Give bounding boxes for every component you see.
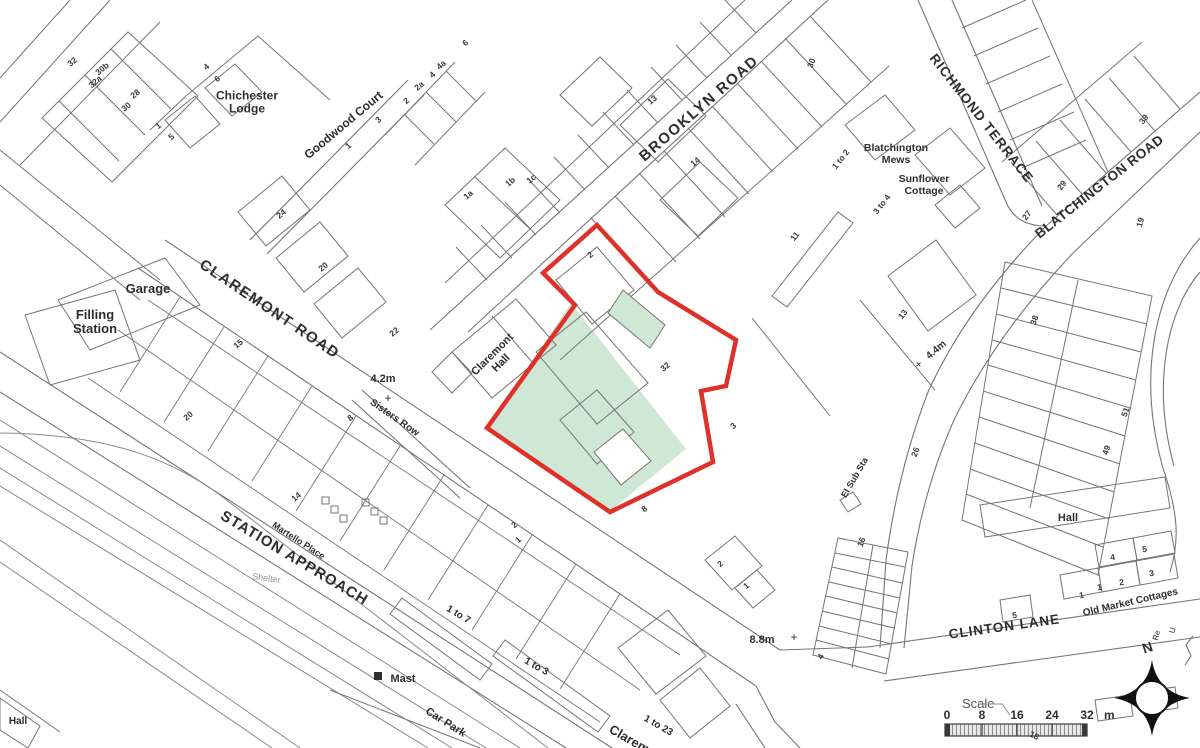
map-label-num-1-s: 1 [741, 580, 751, 591]
map-label-num-19: 19 [1134, 216, 1146, 228]
map-label-num-4-cl: 4 [1110, 552, 1116, 563]
map-label-blatchington-mews: BlatchingtonMews [864, 142, 928, 166]
map-label-num-3-cl: 3 [1149, 568, 1155, 579]
map-label-num-1b: 1b [503, 175, 517, 189]
map-label-range-1-to-23: 1 to 23 [642, 713, 675, 739]
scale-tick-8: 8 [979, 708, 986, 722]
map-label-num-1to2: 1 to 2 [830, 147, 852, 171]
map-label-partial-u: U [1167, 626, 1177, 634]
map-label-num-5-a: 5 [166, 131, 176, 142]
map-label-num-32: 32 [65, 55, 79, 69]
map-label-num-1a: 1a [461, 188, 475, 202]
map-label-num-2-s: 2 [715, 558, 725, 569]
scale-bar: Scale 08162432 m [944, 696, 1115, 736]
map-label-station-approach: STATION APPROACH [217, 507, 371, 609]
map-label-num-1-cl-a: 1 [1079, 590, 1085, 601]
map-label-num-20-w: 20 [181, 409, 195, 423]
map-label-chichester-lodge: ChichesterLodge [216, 88, 278, 115]
map-label-filling-station: FillingStation [73, 307, 117, 336]
map-label-num-20-cr: 20 [316, 260, 330, 274]
map-label-num-4-s: 4 [815, 652, 826, 661]
map-label-num-26: 26 [909, 446, 922, 459]
map-label-num-2-cl: 2 [1119, 577, 1125, 588]
scale-tick-16: 16 [1010, 708, 1024, 722]
map-label-num-2-gc: 2 [401, 95, 411, 106]
map-label-num-38: 38 [1028, 314, 1041, 327]
map-label-num-14-br: 14 [688, 155, 702, 169]
map-canvas: Scale 08162432 m N BROOKLYN ROADCLAREMON… [0, 0, 1200, 748]
map-label-num-28: 28 [128, 87, 142, 101]
map-label-range-1-to-3: 1 to 3 [522, 656, 551, 678]
map-label-num-5-cl2: 5 [1012, 610, 1018, 621]
map-label-plus-8-8: + [790, 630, 797, 644]
compass-north-label: N [1140, 638, 1155, 656]
map-label-num-1-cl-b: 1 [1097, 582, 1103, 593]
map-label-num-13-e: 13 [896, 307, 910, 321]
map-label-num-4a-gc: 4a [434, 58, 448, 72]
map-label-sunflower-cottage: SunflowerCottage [899, 173, 950, 197]
map-label-sisters-row: Sisters Row [368, 397, 421, 439]
map-label-partial-re: Re [1151, 629, 1162, 642]
scale-unit: m [1104, 708, 1115, 722]
map-label-num-16: 16 [855, 536, 868, 549]
map-label-blatchington-road: BLATCHINGTON ROAD [1032, 132, 1166, 242]
map-label-height-8-8m: 8.8m [749, 634, 774, 646]
map-label-num-4-a: 4 [201, 61, 211, 72]
map-label-num-1c: 1c [524, 172, 538, 186]
map-label-num-22: 22 [387, 325, 401, 339]
map-label-num-1-gc: 1 [343, 140, 353, 151]
map-label-num-49: 49 [1100, 444, 1113, 457]
map-label-num-13-br: 13 [645, 93, 659, 107]
map-label-garage: Garage [126, 281, 171, 296]
map-label-range-1-to-7: 1 to 7 [444, 603, 472, 626]
map-label-old-market-cottages: Old Market Cottages [1082, 586, 1180, 619]
map-label-num-32-site: 32 [658, 360, 672, 374]
site-location-plan: Scale 08162432 m N BROOKLYN ROADCLAREMON… [0, 0, 1200, 748]
scale-tick-24: 24 [1045, 708, 1059, 722]
map-label-num-30-br: 30 [805, 57, 818, 70]
mast-symbol [374, 672, 382, 680]
map-label-hall-east: Hall [1058, 512, 1078, 524]
map-label-num-1-sw: 1 [513, 534, 523, 545]
map-label-num-3-site: 3 [728, 420, 738, 431]
map-label-num-8-site: 8 [639, 503, 649, 514]
map-label-num-3-gc: 3 [373, 114, 383, 125]
map-label-plus-4-4: + [913, 358, 926, 371]
map-label-num-5-cl: 5 [1142, 544, 1148, 555]
compass-rose: N [1114, 638, 1190, 736]
map-label-richmond-terrace: RICHMOND TERRACE [927, 51, 1037, 186]
map-label-num-2a-gc: 2a [412, 79, 426, 93]
map-label-num-14-w: 14 [289, 490, 303, 504]
map-label-shelter: Shelter [252, 571, 282, 585]
map-label-num-24: 24 [274, 207, 288, 221]
map-label-plus-4-2: + [384, 391, 391, 405]
map-label-hall-southwest: Hall [9, 716, 28, 727]
map-label-height-4-2m: 4.2m [370, 373, 395, 385]
scale-tick-0: 0 [944, 708, 951, 722]
map-label-goodwood-court: Goodwood Court [301, 88, 385, 162]
map-label-num-6-top: 6 [460, 37, 470, 48]
map-label-clinton-lane: CLINTON LANE [948, 611, 1061, 641]
map-label-num-11: 11 [788, 229, 802, 242]
scale-tick-32: 32 [1080, 708, 1094, 722]
map-label-num-29: 29 [1055, 178, 1069, 192]
map-label-num-4-gc: 4 [427, 69, 437, 80]
map-label-mast: Mast [390, 673, 415, 685]
map-label-num-3to4: 3 to 4 [871, 192, 893, 216]
map-label-el-sub-sta: El Sub Sta [839, 455, 870, 499]
